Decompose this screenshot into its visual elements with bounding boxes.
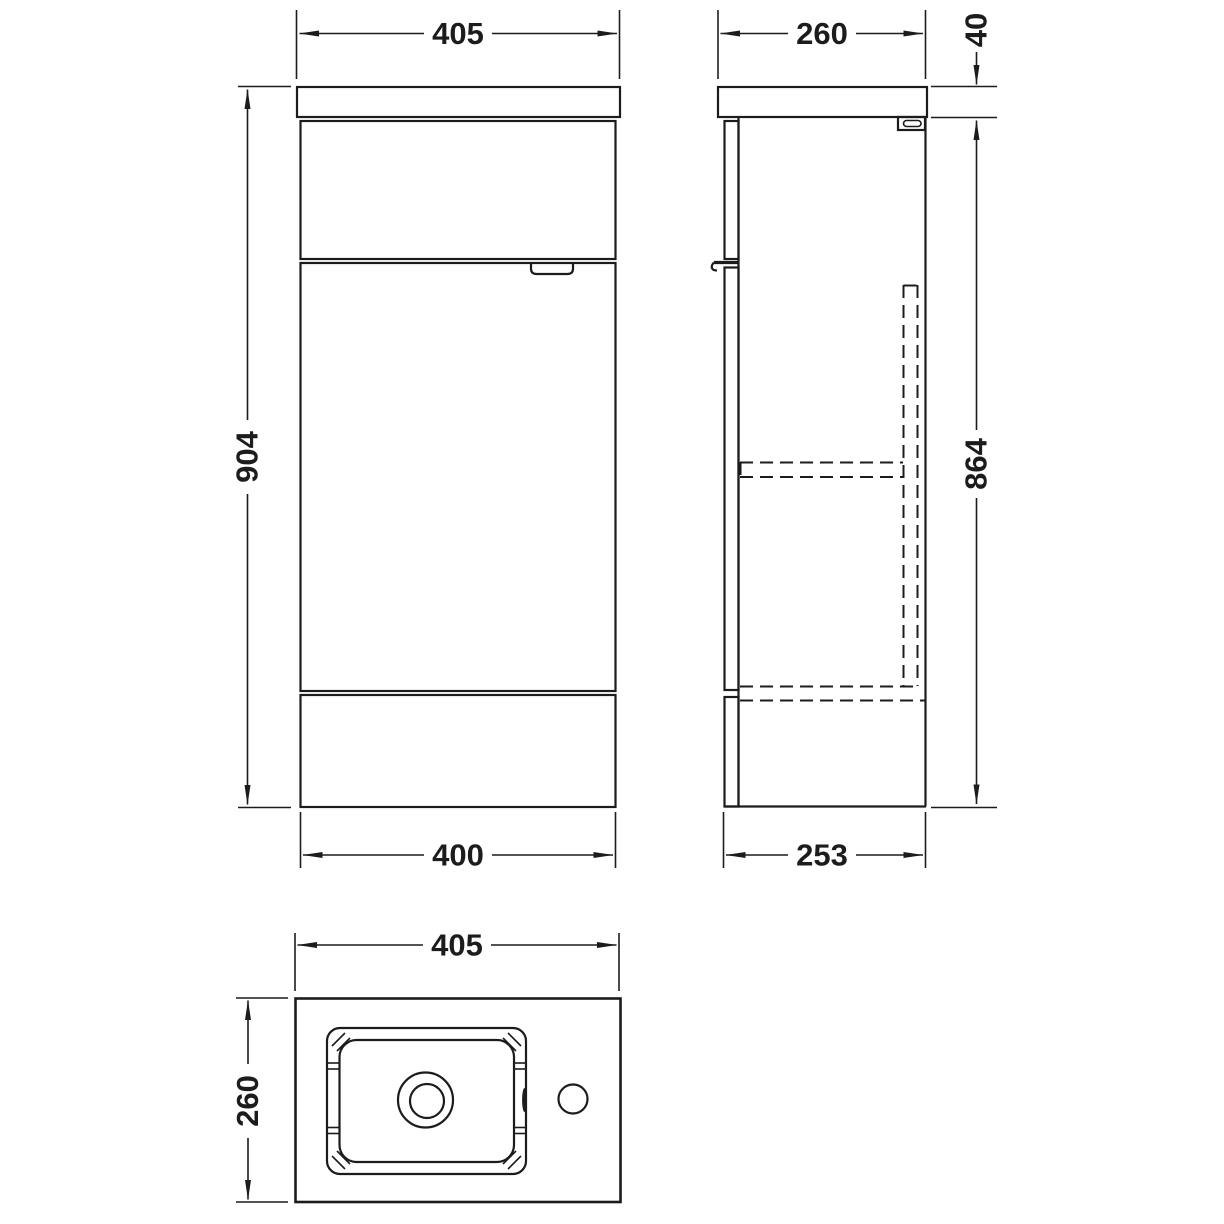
worktop-front [297,87,620,117]
worktop-fixing-slot [898,117,925,130]
plinth-front [301,695,616,807]
side-elevation-view: 260 [712,10,997,873]
dim-cabinet-height: 864 [931,121,997,808]
drawing-canvas: 405 904 400 [0,0,1224,1224]
basin-corner-chamfers [332,1033,521,1169]
worktop-side [718,87,927,117]
basin-outer-rim [327,1028,526,1174]
dim-label-front-width-bottom: 400 [432,838,484,873]
door-front [301,263,616,691]
hidden-back-panel [904,285,918,686]
dim-front-width-top: 405 [297,10,620,79]
dim-label-front-height: 904 [230,430,265,482]
dim-label-cabinet-height: 864 [959,437,994,489]
fixing-slot [904,121,922,127]
basin [327,1028,527,1174]
dim-label-worktop-thickness: 40 [959,13,994,47]
drawer-edge-profile [725,121,739,259]
drawer-front [301,121,616,259]
dim-label-side-depth-top: 260 [796,16,848,51]
door-edge-profile [725,268,739,691]
dim-label-side-depth-bottom: 253 [796,838,848,873]
dim-label-plan-width: 405 [431,928,483,963]
dim-plan-width: 405 [295,928,619,992]
dim-plan-depth: 260 [230,998,288,1202]
dim-front-width-bottom: 400 [301,812,616,873]
overflow-slot [522,1088,527,1112]
vanity-unit-technical-drawing: 405 904 400 [0,0,1224,1224]
dim-label-plan-depth: 260 [230,1075,265,1127]
tap-hole [559,1085,588,1114]
drain-hole [410,1084,444,1118]
front-elevation-view: 405 904 400 [230,10,621,873]
hidden-shelf [740,462,903,477]
dim-worktop-thickness: 40 [931,13,997,118]
plinth-edge-profile [725,697,739,807]
door-handle-recess [531,264,573,274]
hidden-base-panel [740,687,925,701]
plan-view: 405 260 [230,928,621,1203]
dim-side-depth-bottom: 253 [724,812,926,873]
dim-side-depth-top: 260 [718,10,926,79]
basin-inner-bowl [340,1040,515,1162]
dim-front-height: 904 [230,87,292,808]
dim-label-front-width-top: 405 [432,16,484,51]
